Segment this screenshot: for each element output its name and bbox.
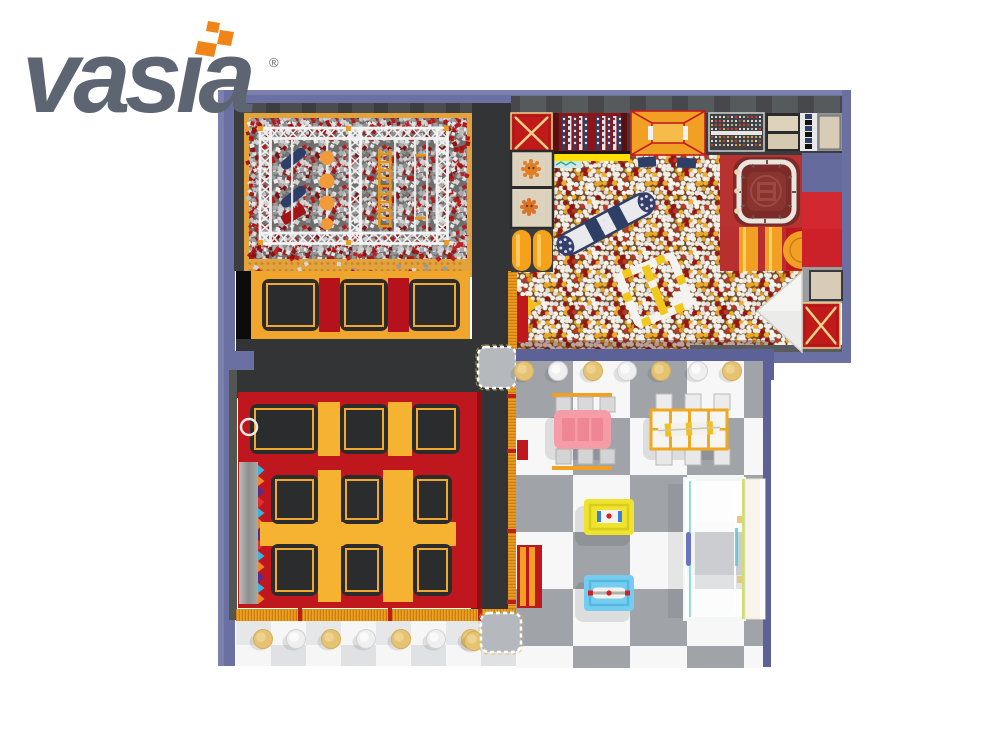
svg-text:®: ® — [269, 55, 279, 70]
